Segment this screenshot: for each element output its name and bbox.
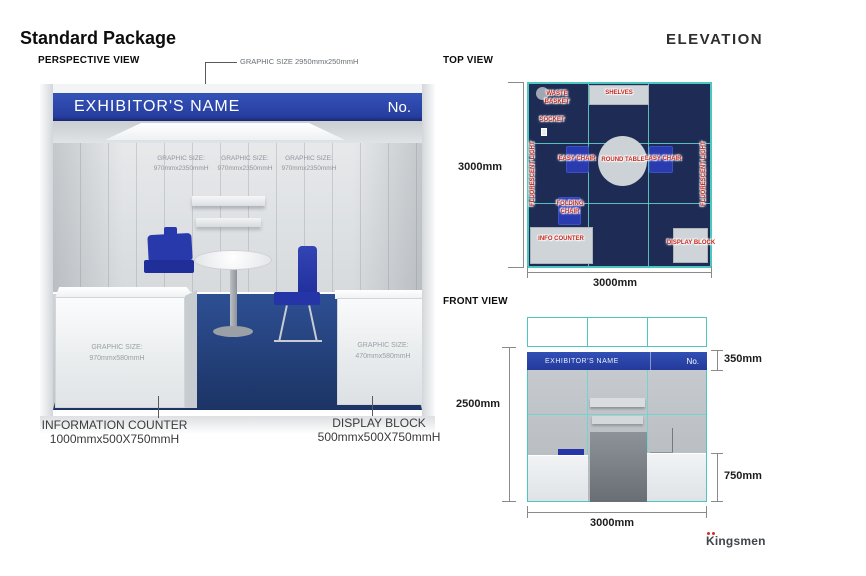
- counter-height-dimension: 750mm: [724, 470, 762, 482]
- dimension-tick: [711, 501, 723, 502]
- easy-chair-seat: [274, 292, 320, 305]
- display-graphic-size-label: GRAPHIC SIZE:470mmx580mmH: [348, 340, 418, 362]
- plan-info-counter-label: INFO COUNTER: [537, 236, 585, 244]
- display-block-callout: DISPLAY BLOCK 500mmx500X750mmH: [300, 417, 458, 445]
- booth-number: No.: [687, 357, 699, 366]
- dimension-tick: [711, 453, 723, 454]
- front-view-shelf-lower: [592, 416, 643, 424]
- round-table-top: [194, 250, 272, 270]
- frame-divider: [587, 318, 588, 346]
- info-counter-side: [185, 290, 197, 408]
- callout-line: [205, 62, 237, 63]
- round-table-base: [213, 326, 253, 337]
- easy-chair-sled: [274, 340, 322, 342]
- right-post: [422, 84, 435, 416]
- top-view-height-dimension: 3000mm: [458, 161, 502, 173]
- right-wall-shade: [352, 121, 422, 294]
- wall-graphic-size-1: GRAPHIC SIZE:970mmx2350mmH: [154, 154, 209, 175]
- front-view-label: FRONT VIEW: [443, 296, 508, 307]
- top-view-width-dimension: 3000mm: [593, 277, 637, 289]
- logo-dot-icon: [707, 532, 710, 535]
- plan-fluorescent-left-label: FLUORESCENT LIGHT: [530, 142, 538, 206]
- plan-easy-chair-left-label: EASY CHAIR: [555, 156, 599, 164]
- page-title: Standard Package: [20, 28, 176, 49]
- plan-display-block-label: DISPLAY BLOCK: [665, 240, 717, 248]
- front-view-display-block: [647, 453, 706, 501]
- dimension-line: [527, 512, 707, 513]
- dimension-tick: [502, 501, 516, 502]
- dimension-tick: [711, 350, 723, 351]
- folding-chair-seat: [144, 260, 194, 273]
- easy-chair-back: [298, 246, 317, 296]
- callout-line: [372, 396, 373, 416]
- dimension-line: [717, 350, 718, 371]
- front-view-open-frame: [527, 317, 707, 347]
- dimension-line: [509, 347, 510, 502]
- dimension-tick: [711, 370, 723, 371]
- wall-grid-line: [528, 414, 706, 415]
- folding-chair-back: [147, 233, 192, 263]
- booth-number: No.: [388, 99, 411, 116]
- round-table-stem: [230, 268, 237, 330]
- fascia-height-dimension: 350mm: [724, 353, 762, 365]
- logo-dot-icon: [712, 532, 715, 535]
- dimension-tick: [706, 506, 707, 518]
- wall-graphic-size-3: GRAPHIC SIZE:970mmx2350mmH: [281, 154, 336, 175]
- wall-graphic-labels: GRAPHIC SIZE:970mmx2350mmH GRAPHIC SIZE:…: [115, 154, 375, 175]
- counter-graphic-size-label: GRAPHIC SIZE:970mmx580mmH: [62, 342, 172, 364]
- plan-round-table-label: ROUND TABLE: [597, 157, 649, 165]
- dimension-tick: [508, 82, 524, 83]
- fascia-panel: EXHIBITOR'S NAME No.: [50, 93, 425, 121]
- dimension-line: [717, 453, 718, 502]
- dimension-line: [523, 82, 524, 268]
- plan-grid-line: [648, 84, 649, 266]
- plan-fluorescent-right-label: FLUORESCENT LIGHT: [701, 142, 709, 206]
- wall-graphic-size-2: GRAPHIC SIZE:970mmx2350mmH: [218, 154, 273, 175]
- fascia-graphic-size-callout: GRAPHIC SIZE 2950mmx250mmH: [240, 57, 358, 66]
- plan-info-counter: [530, 227, 593, 264]
- exhibitor-name: EXHIBITOR'S NAME: [545, 358, 619, 365]
- standard-package-sheet: Standard Package ELEVATION PERSPECTIVE V…: [0, 0, 866, 576]
- front-view-width-dimension: 3000mm: [590, 517, 634, 529]
- front-view-fascia: EXHIBITOR'S NAME No.: [527, 352, 707, 370]
- wall-shelf-upper: [192, 196, 265, 206]
- left-wall-shade: [53, 121, 123, 294]
- plan-shelves-label: SHELVES: [589, 90, 649, 98]
- front-view-info-counter: [528, 455, 588, 501]
- front-view-easy-chair: [672, 428, 673, 454]
- dimension-tick: [527, 266, 528, 278]
- wall-shelf-lower: [196, 218, 261, 227]
- dimension-tick: [527, 506, 528, 518]
- dimension-tick: [502, 347, 516, 348]
- elevation-title: ELEVATION: [666, 31, 763, 48]
- brand-name: Kingsmen: [706, 534, 766, 548]
- frame-divider: [647, 318, 648, 346]
- dimension-tick: [508, 267, 524, 268]
- exhibitor-name: EXHIBITOR'S NAME: [74, 98, 240, 116]
- front-view-height-dimension: 2500mm: [456, 398, 500, 410]
- top-view-label: TOP VIEW: [443, 55, 493, 66]
- perspective-view: EXHIBITOR'S NAME No. GRAPHIC SIZE:970mmx…: [40, 84, 435, 416]
- dimension-tick: [711, 266, 712, 278]
- plan-folding-chair-label: FOLDING CHAIR: [553, 201, 587, 216]
- front-view-center-recess: [590, 432, 647, 502]
- left-post: [40, 84, 53, 416]
- perspective-view-label: PERSPECTIVE VIEW: [38, 55, 140, 66]
- socket-symbol: [541, 128, 547, 136]
- kingsmen-logo: Kingsmen: [706, 534, 766, 548]
- callout-line: [158, 396, 159, 418]
- plan-socket-label: SOCKET: [535, 117, 569, 125]
- fascia-divider: [650, 352, 651, 370]
- front-view-shelf-upper: [590, 398, 645, 407]
- top-view-plan: SHELVES WASTE BASKET SOCKET FLUORESCENT …: [527, 82, 712, 268]
- dimension-line: [527, 272, 712, 273]
- ceiling-light-panel: [105, 123, 345, 140]
- plan-waste-basket-label: WASTE BASKET: [539, 91, 575, 106]
- information-counter-callout: INFORMATION COUNTER 1000mmx500X750mmH: [12, 419, 217, 447]
